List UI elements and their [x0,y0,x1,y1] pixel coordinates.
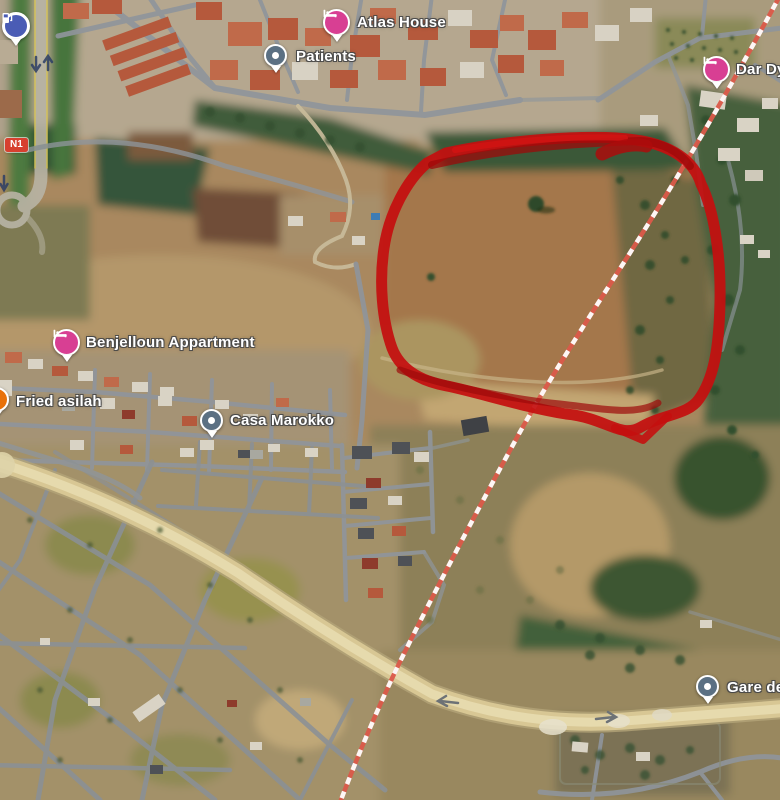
gas-station-pin[interactable] [2,12,30,46]
lodging-pin-dar-dy[interactable] [703,56,730,89]
route-badge-n1: N1 [5,138,28,152]
place-label-dar-dy[interactable]: Dar Dy [736,62,780,79]
place-label-benjelloun[interactable]: Benjelloun Appartment [86,335,255,352]
fuel-pump-icon [2,12,13,24]
place-pin-patients[interactable] [264,44,287,73]
lodging-pin-atlas-house[interactable] [323,9,350,42]
lodging-pin-benjelloun[interactable] [53,329,80,362]
bed-icon [53,329,67,338]
place-label-fried-asilah[interactable]: Fried asilah [16,394,102,411]
restaurant-pin-fried-asilah[interactable] [0,387,9,418]
satellite-map-canvas[interactable]: N1 Atlas House Patients Dar Dy [0,0,780,800]
place-label-patients[interactable]: Patients [296,49,356,66]
place-pin-casa-marokko[interactable] [200,409,223,438]
place-label-casa-marokko[interactable]: Casa Marokko [230,413,334,430]
bed-icon [323,9,337,18]
place-label-gare-de[interactable]: Gare de [727,680,780,697]
place-label-atlas-house[interactable]: Atlas House [357,15,446,32]
satellite-imagery [0,0,780,800]
bed-icon [703,56,717,65]
place-pin-gare-de[interactable] [696,675,719,704]
